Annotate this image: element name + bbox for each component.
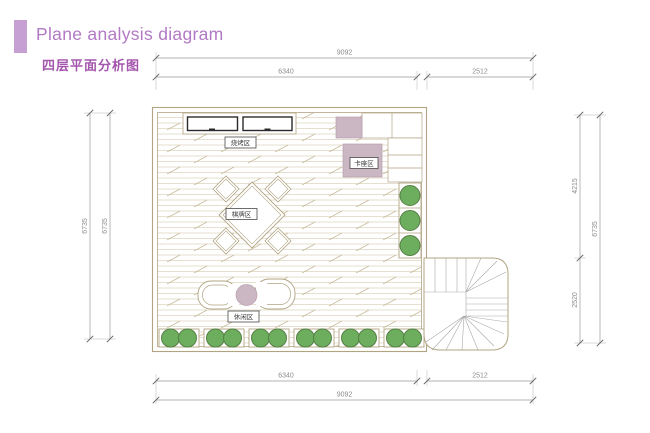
dim-bottom-right: 2512: [472, 373, 488, 380]
plant-circle: [224, 329, 242, 347]
dim-top-total: 9092: [337, 50, 353, 57]
dim-right-upper: 4215: [572, 178, 579, 194]
leisure-sofa-right: [255, 279, 295, 309]
dimension-left: 6735 6735: [82, 110, 116, 342]
leisure-label: 休闲区: [234, 312, 254, 321]
planter-box: [339, 329, 379, 347]
dim-right-total: 6735: [592, 221, 599, 237]
stairs: [424, 258, 508, 350]
leisure-table: [236, 285, 257, 306]
plant-circle: [359, 329, 377, 347]
dim-left-inner: 6735: [102, 218, 109, 234]
plant-circle: [207, 329, 225, 347]
planter-box: [249, 329, 289, 347]
plant-circle: [314, 329, 332, 347]
dim-bottom-left: 6340: [278, 373, 294, 380]
dim-right-lower: 2520: [572, 292, 579, 308]
plant-circle: [162, 329, 180, 347]
plant-circle: [297, 329, 315, 347]
chess-area: 棋牌区: [213, 176, 291, 254]
planter-box: [204, 329, 244, 347]
plant-circle: [269, 329, 287, 347]
bbq-grill-mark: [209, 129, 215, 131]
bbq-label: 烧烤区: [231, 138, 251, 147]
counter-column: [388, 138, 422, 182]
bbq-table: [188, 117, 238, 131]
planter-box: [159, 329, 199, 347]
chess-label: 棋牌区: [232, 210, 252, 219]
plant-circle: [400, 211, 420, 231]
planter-box: [294, 329, 334, 347]
booth-block-small: [336, 117, 362, 138]
floor-plan: 烧烤区 卡座区: [153, 108, 509, 352]
dimension-bottom: 6340 2512 9092: [153, 370, 536, 404]
booth-label: 卡座区: [354, 159, 374, 168]
plant-circle: [400, 236, 420, 256]
right-planter: [399, 183, 421, 258]
bbq-table: [243, 117, 292, 131]
plane-analysis-page: Plane analysis diagram 四层平面分析图 烧烤区: [0, 0, 650, 433]
plant-circle: [179, 329, 197, 347]
leisure-sofa-left: [198, 281, 239, 309]
dim-top-left: 6340: [278, 69, 294, 76]
plant-circle: [252, 329, 270, 347]
plant-circle: [400, 186, 420, 206]
planter-box: [384, 329, 424, 347]
plant-circle: [404, 329, 422, 347]
floor-plan-drawing: 烧烤区 卡座区: [0, 0, 650, 433]
bbq-grill-mark: [265, 129, 271, 131]
plant-circle: [342, 329, 360, 347]
plant-circle: [387, 329, 405, 347]
dim-left-outer: 6735: [82, 218, 89, 234]
dim-bottom-total: 9092: [337, 392, 353, 399]
dimension-top: 9092 6340 2512: [153, 50, 536, 91]
booth-area: 卡座区: [336, 113, 422, 182]
dim-top-right: 2512: [472, 69, 488, 76]
dimension-right: 4215 2520 6735: [572, 112, 606, 346]
